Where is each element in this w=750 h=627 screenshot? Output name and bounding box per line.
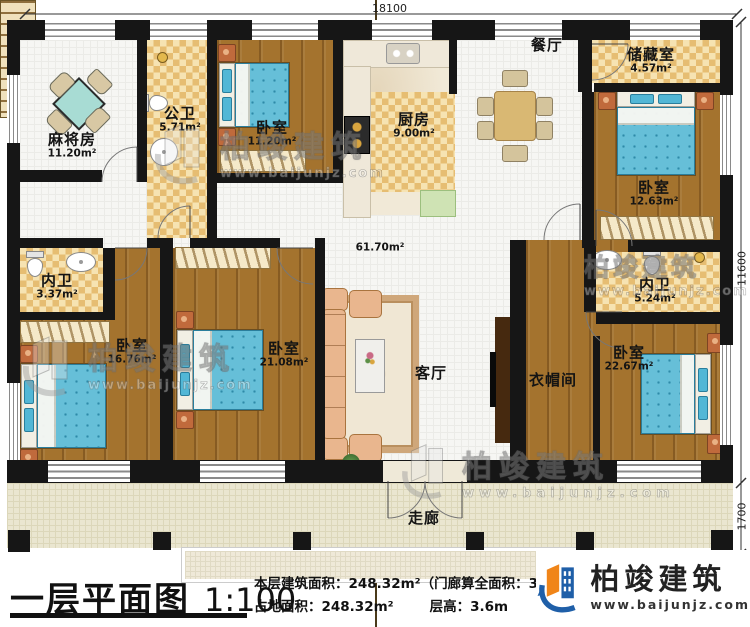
window: [200, 461, 285, 482]
nightstand-icon: [20, 345, 38, 363]
tv-cabinet-icon: [495, 317, 510, 443]
room-label-bedroom-top: 卧室11.20m²: [248, 121, 297, 148]
room-label-bedroom-right-top: 卧室12.63m²: [630, 181, 679, 208]
window: [372, 20, 432, 40]
brand-name: 柏竣建筑: [590, 565, 750, 594]
window: [48, 461, 130, 482]
nightstand-icon: [598, 92, 616, 110]
wall: [20, 312, 115, 320]
stove-icon: [344, 116, 370, 154]
round-washbasin-icon: [150, 138, 178, 166]
wall: [315, 238, 325, 460]
wardrobe-icon: [20, 321, 110, 343]
room-label-cloakroom: 衣帽间: [529, 373, 577, 389]
window: [720, 345, 733, 445]
dining-chair-icon: [536, 121, 553, 140]
window: [45, 20, 115, 40]
window: [617, 461, 701, 482]
light-fixture-icon: [694, 252, 705, 263]
dimension-porch-depth: 1700: [736, 499, 749, 535]
room-label-mahjong: 麻将房11.20m²: [48, 133, 97, 160]
wardrobe-icon: [220, 150, 306, 172]
brand-mark-icon: [536, 556, 582, 622]
nightstand-icon: [218, 128, 236, 146]
entry-opening: [383, 461, 467, 482]
dining-chair-icon: [502, 70, 528, 87]
wall: [333, 40, 343, 183]
room-label-bedroom-right-bottom: 卧室22.67m²: [605, 346, 654, 373]
wardrobe-icon: [600, 216, 714, 240]
room-label-kitchen: 厨房9.00m²: [393, 113, 434, 140]
wall: [137, 40, 147, 182]
light-fixture-icon: [157, 52, 168, 63]
dining-chair-icon: [536, 97, 553, 116]
wall: [584, 240, 596, 252]
pillar: [466, 532, 484, 550]
wall: [7, 170, 102, 182]
room-label-corridor: 走廊: [408, 511, 440, 527]
dining-chair-icon: [477, 121, 494, 140]
sofa-icon: [322, 309, 346, 439]
dimension-total-width: 18100: [372, 2, 407, 15]
room-label-inner-bath-right: 内卫5.24m²: [634, 278, 675, 305]
nightstand-icon: [176, 311, 194, 329]
stat-land-area: 占地面积：248.32m²: [254, 601, 394, 615]
window: [720, 95, 733, 175]
plan-stats: 本层建筑面积：248.32m²（门廊算全面积：31.1 占地面积：248.32m…: [254, 578, 562, 614]
window: [630, 20, 700, 40]
room-label-storage: 储藏室4.57m²: [627, 48, 675, 75]
bed-icon: [20, 363, 107, 449]
coffee-table-icon: [355, 339, 385, 393]
dimension-main-depth: 11600: [736, 251, 749, 287]
stat-floor-area: 本层建筑面积：248.32m²（门廊算全面积：31.1: [254, 578, 562, 592]
floor-corridor: [7, 483, 733, 548]
dining-chair-icon: [477, 97, 494, 116]
pillar: [293, 532, 311, 550]
bed-icon: [176, 329, 264, 411]
wall: [510, 240, 526, 460]
toilet-icon: [643, 249, 661, 275]
armchair-icon: [349, 290, 382, 318]
wall: [628, 240, 733, 252]
wall: [7, 20, 733, 40]
washbasin-icon: [66, 252, 96, 272]
kitchen-mat: [420, 190, 456, 217]
nightstand-icon: [218, 44, 236, 62]
room-label-bedroom-left: 卧室16.76m²: [108, 339, 157, 366]
room-label-dining: 餐厅: [531, 38, 563, 54]
wall: [160, 238, 173, 460]
dining-table-icon: [494, 91, 536, 141]
room-label-inner-bath-left: 内卫3.37m²: [36, 274, 77, 301]
brand-logo: 柏竣建筑 www.baijunjz.com: [536, 550, 750, 627]
wall: [584, 252, 596, 312]
wall: [594, 83, 733, 92]
dining-chair-icon: [502, 145, 528, 162]
wardrobe-icon: [175, 247, 271, 269]
wall: [593, 336, 600, 460]
wall: [207, 40, 217, 248]
pillar: [8, 530, 30, 552]
nightstand-icon: [696, 92, 714, 110]
window: [150, 20, 207, 40]
window: [7, 383, 20, 460]
living-area-value: 61.70m²: [356, 242, 405, 253]
sofa-corner-icon: [322, 288, 348, 311]
wall: [582, 92, 594, 248]
title-underline: [10, 613, 247, 618]
wall: [449, 40, 457, 94]
floor-kitchen-tile: [369, 92, 455, 192]
wall: [578, 40, 592, 92]
room-label-public-bath: 公卫5.71m²: [159, 107, 200, 134]
room-label-bedroom-mid: 卧室21.08m²: [260, 342, 309, 369]
wall: [190, 238, 280, 248]
wall: [147, 238, 160, 248]
wall: [103, 248, 115, 312]
window: [252, 20, 318, 40]
pillar: [153, 532, 171, 550]
wall: [596, 312, 733, 324]
nightstand-icon: [176, 411, 194, 429]
floor-plan-canvas: 麻将房11.20m² 公卫5.71m² 卧室11.20m² 厨房9.00m² 餐…: [0, 0, 750, 627]
tv-icon: [490, 352, 496, 407]
stat-floor-height: 层高：3.6m: [430, 601, 508, 615]
bed-icon: [616, 90, 696, 176]
washbasin-icon: [592, 250, 622, 270]
kitchen-sink-icon: [386, 43, 420, 64]
pillar: [711, 530, 733, 552]
brand-url: www.baijunjz.com: [590, 597, 750, 612]
pillar: [576, 532, 594, 550]
room-label-living: 客厅: [415, 366, 447, 382]
wall: [217, 173, 343, 183]
window: [7, 75, 20, 143]
wall: [7, 238, 103, 248]
